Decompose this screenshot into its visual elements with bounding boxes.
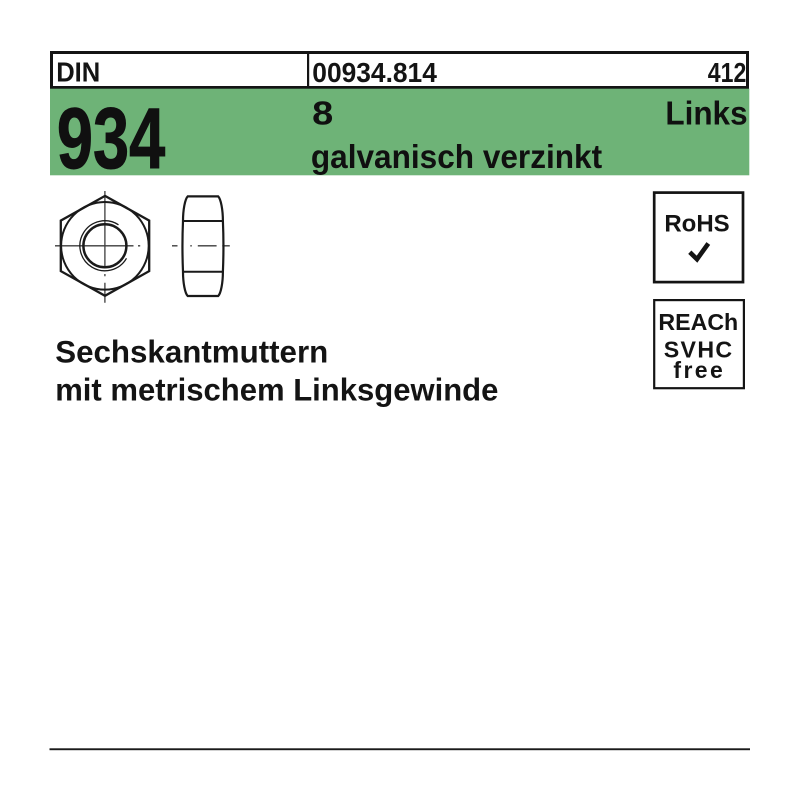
svg-text:934: 934: [57, 91, 165, 187]
svg-text:00934.814: 00934.814: [312, 56, 437, 88]
svg-text:DIN: DIN: [56, 56, 100, 87]
svg-text:mit metrischem Linksgewinde: mit metrischem Linksgewinde: [55, 372, 498, 407]
svg-text:REACh: REACh: [658, 309, 738, 335]
svg-text:RoHS: RoHS: [664, 211, 729, 238]
svg-text:galvanisch verzinkt: galvanisch verzinkt: [311, 139, 602, 176]
svg-text:412: 412: [708, 58, 747, 89]
svg-text:Links: Links: [665, 95, 747, 132]
svg-text:free: free: [673, 357, 725, 383]
svg-text:Sechskantmuttern: Sechskantmuttern: [55, 335, 328, 370]
svg-text:8: 8: [312, 95, 333, 132]
